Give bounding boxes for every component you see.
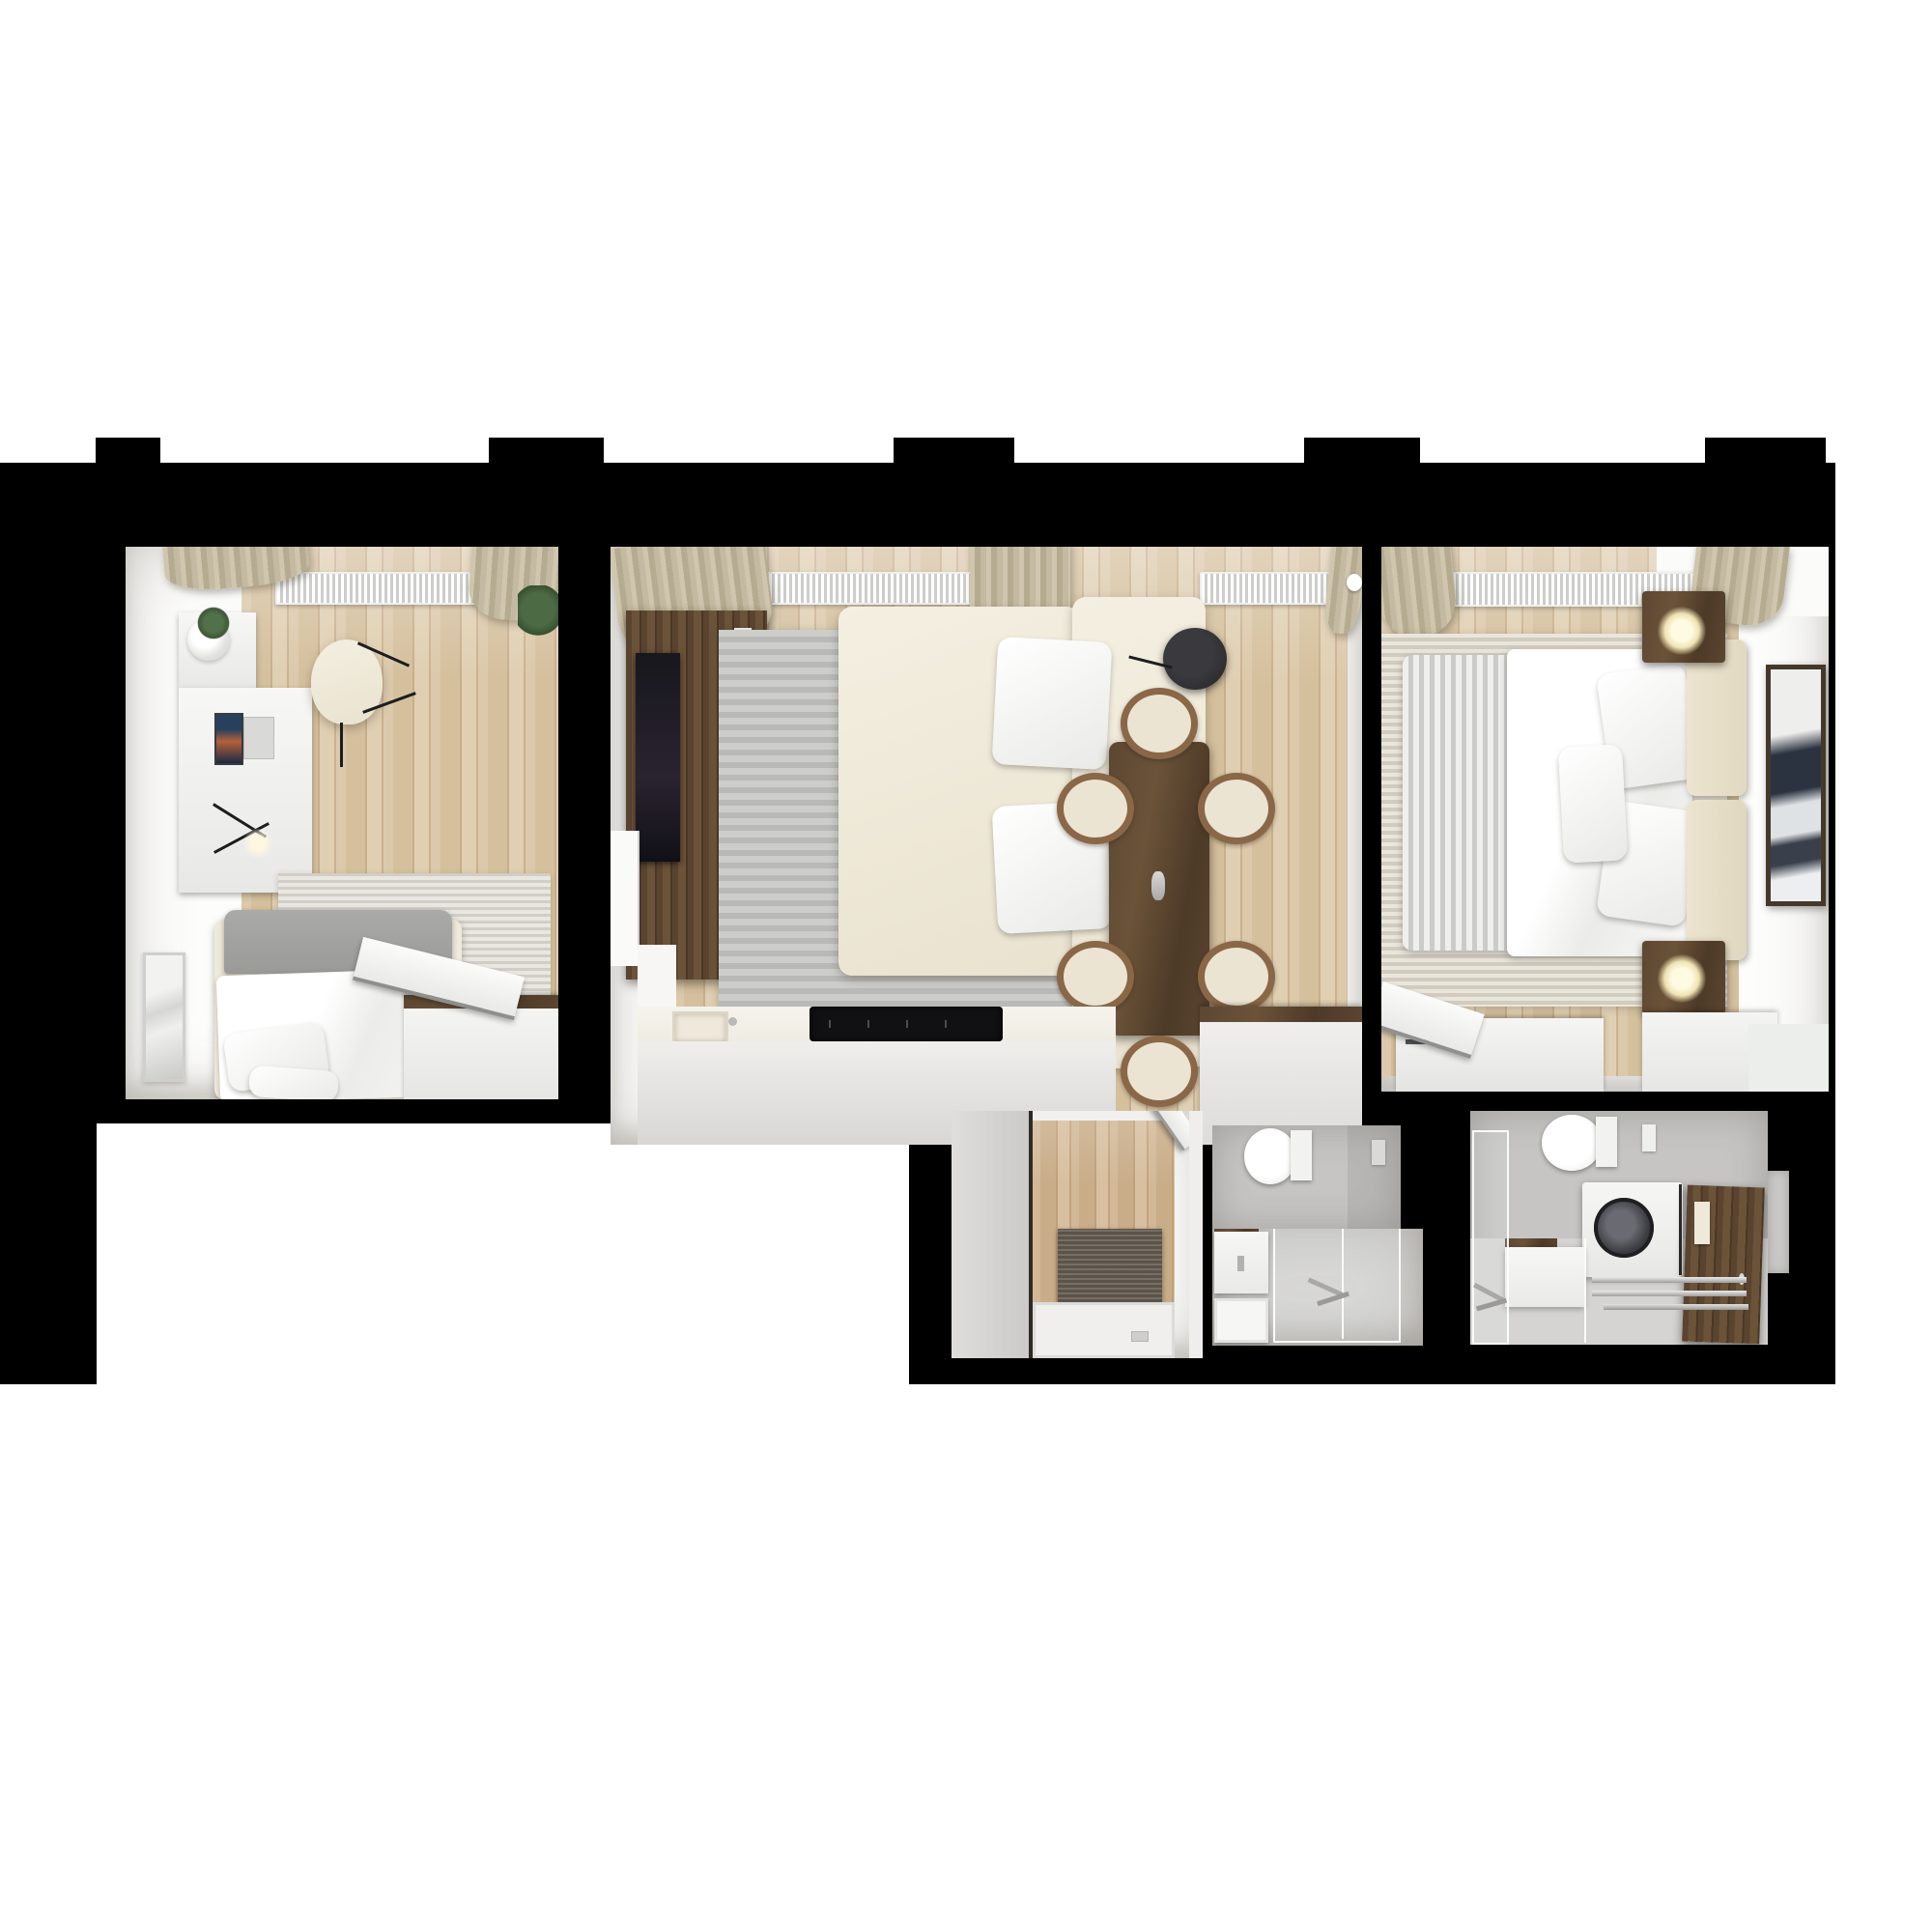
toilet-tank bbox=[1596, 1117, 1617, 1167]
top-wall-window-notch bbox=[1304, 438, 1420, 464]
office-chair-seat bbox=[311, 639, 383, 724]
drain-rail bbox=[1604, 1304, 1748, 1310]
doormat bbox=[1058, 1229, 1162, 1304]
dining-chair bbox=[1121, 688, 1198, 759]
room-bathroom-1-upper bbox=[1212, 1125, 1401, 1232]
shower-glass bbox=[1273, 1229, 1401, 1343]
floor-lamp-shade bbox=[1163, 628, 1227, 690]
wall-clock bbox=[1347, 574, 1362, 591]
dining-chair bbox=[1198, 941, 1275, 1012]
right-wall bbox=[1189, 1111, 1203, 1358]
toilet-bowl bbox=[1542, 1115, 1602, 1171]
tray-drain bbox=[1131, 1331, 1149, 1342]
top-wall-window-notch bbox=[489, 438, 604, 464]
office-chair-leg bbox=[340, 723, 343, 767]
tv-screen bbox=[636, 653, 680, 862]
flush-plate bbox=[1642, 1124, 1656, 1151]
cooktop-marks bbox=[829, 1020, 983, 1028]
sofa-cushion bbox=[992, 637, 1113, 770]
floor-plan-canvas bbox=[0, 0, 1932, 1932]
sink-top bbox=[1505, 1238, 1557, 1247]
room-entry-hall bbox=[952, 1111, 1203, 1358]
table-lamp bbox=[1658, 607, 1706, 655]
toilet-tank bbox=[1291, 1130, 1312, 1180]
wall-art-frame bbox=[1766, 665, 1826, 906]
dining-chair bbox=[1057, 941, 1134, 1012]
room-living-kitchen bbox=[611, 547, 1362, 1145]
room-bedroom-office bbox=[126, 547, 558, 1099]
glass-panel bbox=[1584, 1238, 1586, 1343]
top-wall-window-notch bbox=[96, 438, 160, 464]
plan-background-left bbox=[0, 1123, 97, 1384]
room-bedroom-master bbox=[1381, 547, 1829, 1092]
sink-faucet bbox=[728, 1017, 737, 1026]
bed-striped-runner bbox=[1403, 655, 1519, 951]
washer-seam bbox=[1679, 1184, 1682, 1275]
radiator bbox=[767, 572, 976, 605]
desk-lamp-glow bbox=[241, 829, 274, 858]
threshold-strip bbox=[1033, 1111, 1175, 1121]
kitchen-corner bbox=[638, 945, 676, 1009]
washer-door bbox=[1594, 1198, 1654, 1258]
kitchen-island-top bbox=[1200, 1007, 1362, 1022]
table-lamp bbox=[1658, 954, 1706, 1003]
wall-shade bbox=[1348, 1125, 1401, 1232]
vanity-sink bbox=[1505, 1247, 1584, 1307]
plant-leaves bbox=[197, 607, 230, 639]
wall-mirror bbox=[143, 952, 185, 1082]
headboard bbox=[1687, 639, 1747, 796]
laptop-screen bbox=[214, 713, 243, 765]
kitchen-sink bbox=[672, 1011, 728, 1044]
kitchen-island bbox=[1200, 1007, 1362, 1145]
second-basin bbox=[1214, 1298, 1268, 1343]
toilet-bowl bbox=[1244, 1128, 1296, 1184]
bed-pillow-small bbox=[1558, 744, 1628, 863]
drain-rail bbox=[1592, 1291, 1747, 1296]
drain-rail bbox=[1592, 1277, 1747, 1283]
table-setting bbox=[1151, 871, 1165, 900]
dining-chair bbox=[1198, 773, 1275, 844]
dining-chair bbox=[1057, 773, 1134, 844]
headboard bbox=[1687, 800, 1747, 960]
laptop-keyboard bbox=[243, 717, 274, 759]
top-wall-window-notch bbox=[894, 438, 1014, 464]
room-bathroom-2 bbox=[1470, 1111, 1768, 1345]
towel bbox=[1694, 1202, 1710, 1244]
plant bbox=[518, 585, 558, 639]
basin-faucet bbox=[1237, 1256, 1244, 1271]
shower-glass bbox=[1472, 1130, 1509, 1345]
glass-divider bbox=[1342, 1229, 1344, 1339]
bed-pillow bbox=[248, 1065, 339, 1099]
bathroom-2-step bbox=[1768, 1171, 1789, 1273]
top-wall-window-notch bbox=[1705, 438, 1826, 464]
shower-tray bbox=[1033, 1302, 1175, 1358]
dresser bbox=[1748, 1024, 1829, 1092]
tall-cabinet bbox=[952, 1111, 1029, 1358]
room-bathroom-1-lower bbox=[1212, 1229, 1423, 1346]
dining-chair bbox=[1121, 1036, 1198, 1107]
side-door bbox=[611, 831, 639, 966]
